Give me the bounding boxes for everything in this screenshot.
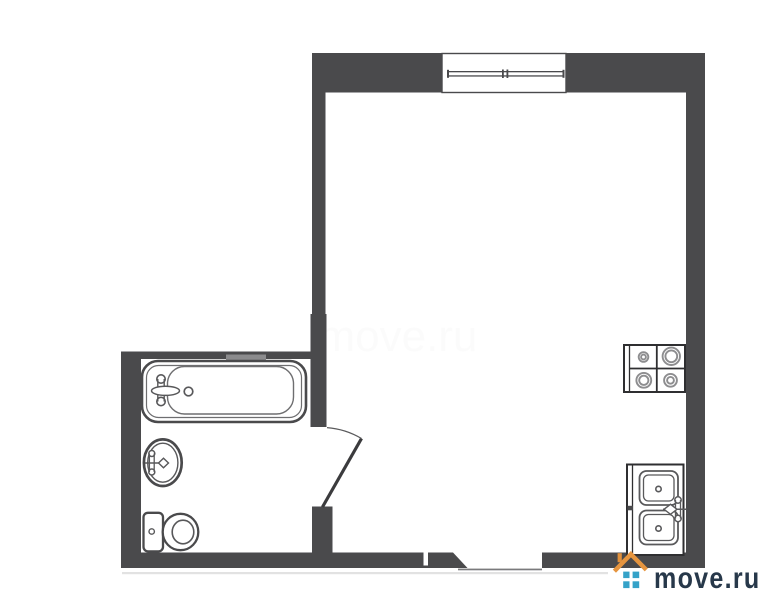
svg-text:move.ru: move.ru (319, 312, 478, 361)
svg-text:move.ru: move.ru (654, 562, 761, 595)
